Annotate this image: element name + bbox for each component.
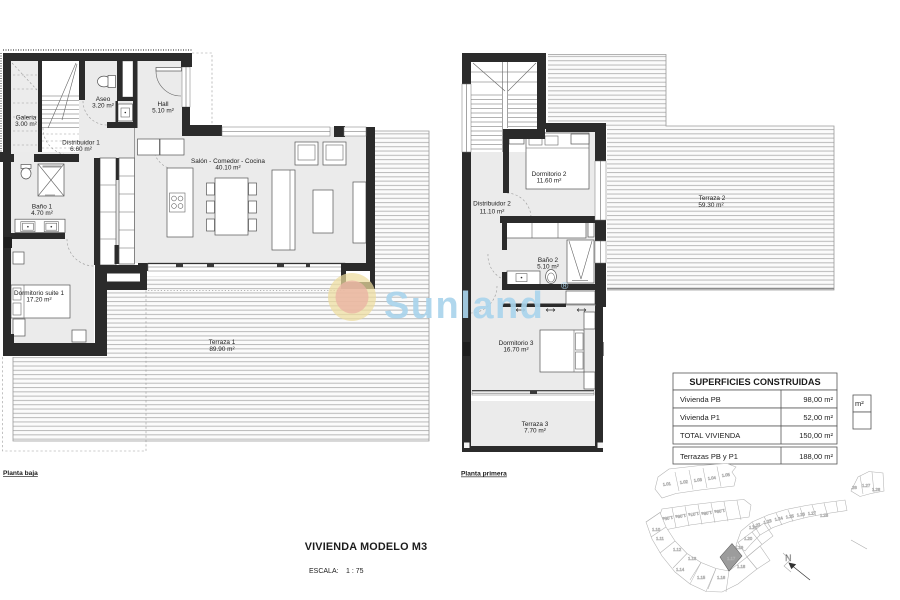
svg-text:TOTAL VIVIENDA: TOTAL VIVIENDA <box>680 431 740 440</box>
svg-text:1.12: 1.12 <box>673 547 682 552</box>
svg-text:11.10 m²: 11.10 m² <box>480 209 505 216</box>
svg-text:Sunland: Sunland <box>384 285 544 327</box>
svg-text:188,00 m²: 188,00 m² <box>799 452 833 461</box>
svg-text:1.11: 1.11 <box>656 536 665 541</box>
svg-text:16.70 m²: 16.70 m² <box>503 347 528 354</box>
svg-text:17.20 m²: 17.20 m² <box>26 297 51 304</box>
svg-text:1.16: 1.16 <box>717 575 726 580</box>
svg-text:1.17: 1.17 <box>727 556 736 561</box>
svg-text:89.90 m²: 89.90 m² <box>209 346 234 353</box>
svg-text:1 : 75: 1 : 75 <box>346 568 364 575</box>
svg-text:4.70 m²: 4.70 m² <box>31 210 53 217</box>
svg-text:®: ® <box>561 281 569 292</box>
svg-text:1.21: 1.21 <box>749 525 758 530</box>
svg-text:1.26: 1.26 <box>797 511 806 517</box>
svg-text:1.28: 1.28 <box>820 513 829 518</box>
svg-text:VIVIENDA MODELO M3: VIVIENDA MODELO M3 <box>305 541 428 553</box>
svg-text:1.18: 1.18 <box>737 564 746 569</box>
svg-text:Planta primera: Planta primera <box>461 471 507 478</box>
svg-text:1.28: 1.28 <box>872 487 881 492</box>
svg-text:40.10 m²: 40.10 m² <box>215 165 240 172</box>
svg-text:52,00 m²: 52,00 m² <box>803 413 833 422</box>
svg-text:m²: m² <box>855 399 864 408</box>
svg-text:1.15: 1.15 <box>697 575 706 580</box>
svg-text:1.13: 1.13 <box>688 556 697 561</box>
svg-text:1.14: 1.14 <box>676 567 685 572</box>
svg-text:1.10: 1.10 <box>652 527 661 532</box>
svg-text:150,00 m²: 150,00 m² <box>799 431 833 440</box>
svg-text:Terraza 1: Terraza 1 <box>209 339 236 346</box>
svg-text:Planta baja: Planta baja <box>3 470 38 477</box>
svg-text:ESCALA:: ESCALA: <box>309 568 339 575</box>
svg-text:Terraza 2: Terraza 2 <box>699 195 726 202</box>
svg-text:1.20: 1.20 <box>744 536 753 541</box>
svg-text:11.60 m²: 11.60 m² <box>537 178 562 185</box>
svg-text:5.10 m²: 5.10 m² <box>537 264 559 271</box>
svg-text:1.27: 1.27 <box>808 510 817 516</box>
svg-text:Terrazas PB y P1: Terrazas PB y P1 <box>680 452 738 461</box>
svg-text:Vivienda PB: Vivienda PB <box>680 395 721 404</box>
svg-text:3.00 m²: 3.00 m² <box>15 121 37 128</box>
svg-text:98,00 m²: 98,00 m² <box>803 395 833 404</box>
svg-text:3.20 m²: 3.20 m² <box>92 103 114 110</box>
svg-text:SUPERFICIES CONSTRUIDAS: SUPERFICIES CONSTRUIDAS <box>689 377 820 387</box>
svg-text:1.27: 1.27 <box>862 483 871 488</box>
svg-text:.26: .26 <box>851 485 857 490</box>
svg-text:6.60 m²: 6.60 m² <box>70 146 92 153</box>
svg-text:Vivienda P1: Vivienda P1 <box>680 413 720 422</box>
svg-text:Distribuidor 2: Distribuidor 2 <box>473 201 511 208</box>
svg-text:59.30 m²: 59.30 m² <box>698 202 723 209</box>
svg-text:5.10 m²: 5.10 m² <box>152 108 174 115</box>
svg-text:7.70 m²: 7.70 m² <box>524 428 546 435</box>
